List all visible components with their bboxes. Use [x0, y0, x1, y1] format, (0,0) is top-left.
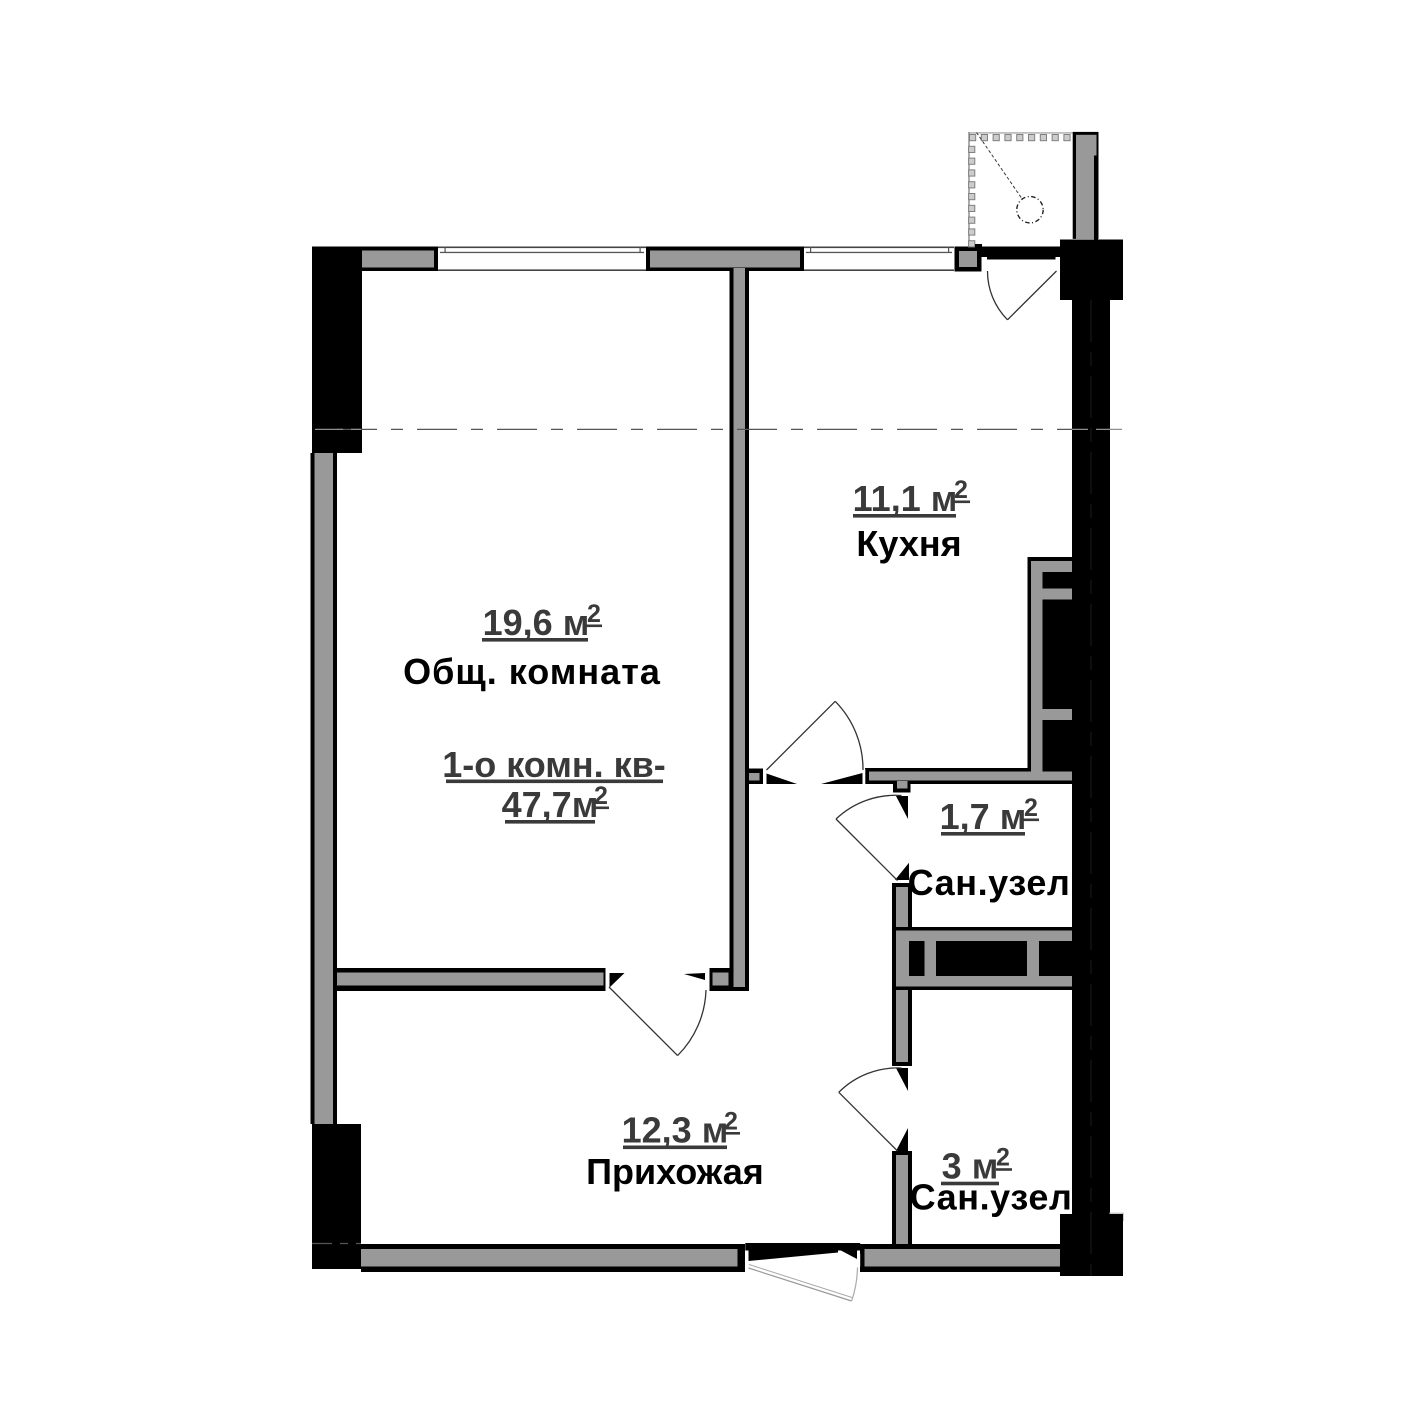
svg-text:Сан.узел: Сан.узел: [908, 862, 1071, 903]
svg-text:2: 2: [954, 476, 968, 504]
svg-text:2: 2: [587, 600, 601, 628]
svg-text:Сан.узел: Сан.узел: [910, 1177, 1073, 1218]
svg-text:Прихожая: Прихожая: [586, 1151, 764, 1192]
svg-text:Общ. комната: Общ. комната: [403, 651, 661, 692]
svg-text:47,7м: 47,7м: [502, 784, 599, 825]
svg-text:2: 2: [594, 782, 608, 810]
svg-text:12,3 м: 12,3 м: [622, 1110, 729, 1151]
svg-text:2: 2: [996, 1144, 1010, 1172]
svg-text:2: 2: [724, 1108, 738, 1136]
svg-text:1,7 м: 1,7 м: [940, 796, 1027, 837]
svg-text:19,6 м: 19,6 м: [483, 602, 590, 643]
svg-text:11,1 м: 11,1 м: [853, 478, 958, 519]
svg-text:Кухня: Кухня: [856, 523, 961, 564]
svg-text:1-о комн. кв-: 1-о комн. кв-: [442, 744, 666, 785]
svg-text:2: 2: [1024, 794, 1038, 822]
